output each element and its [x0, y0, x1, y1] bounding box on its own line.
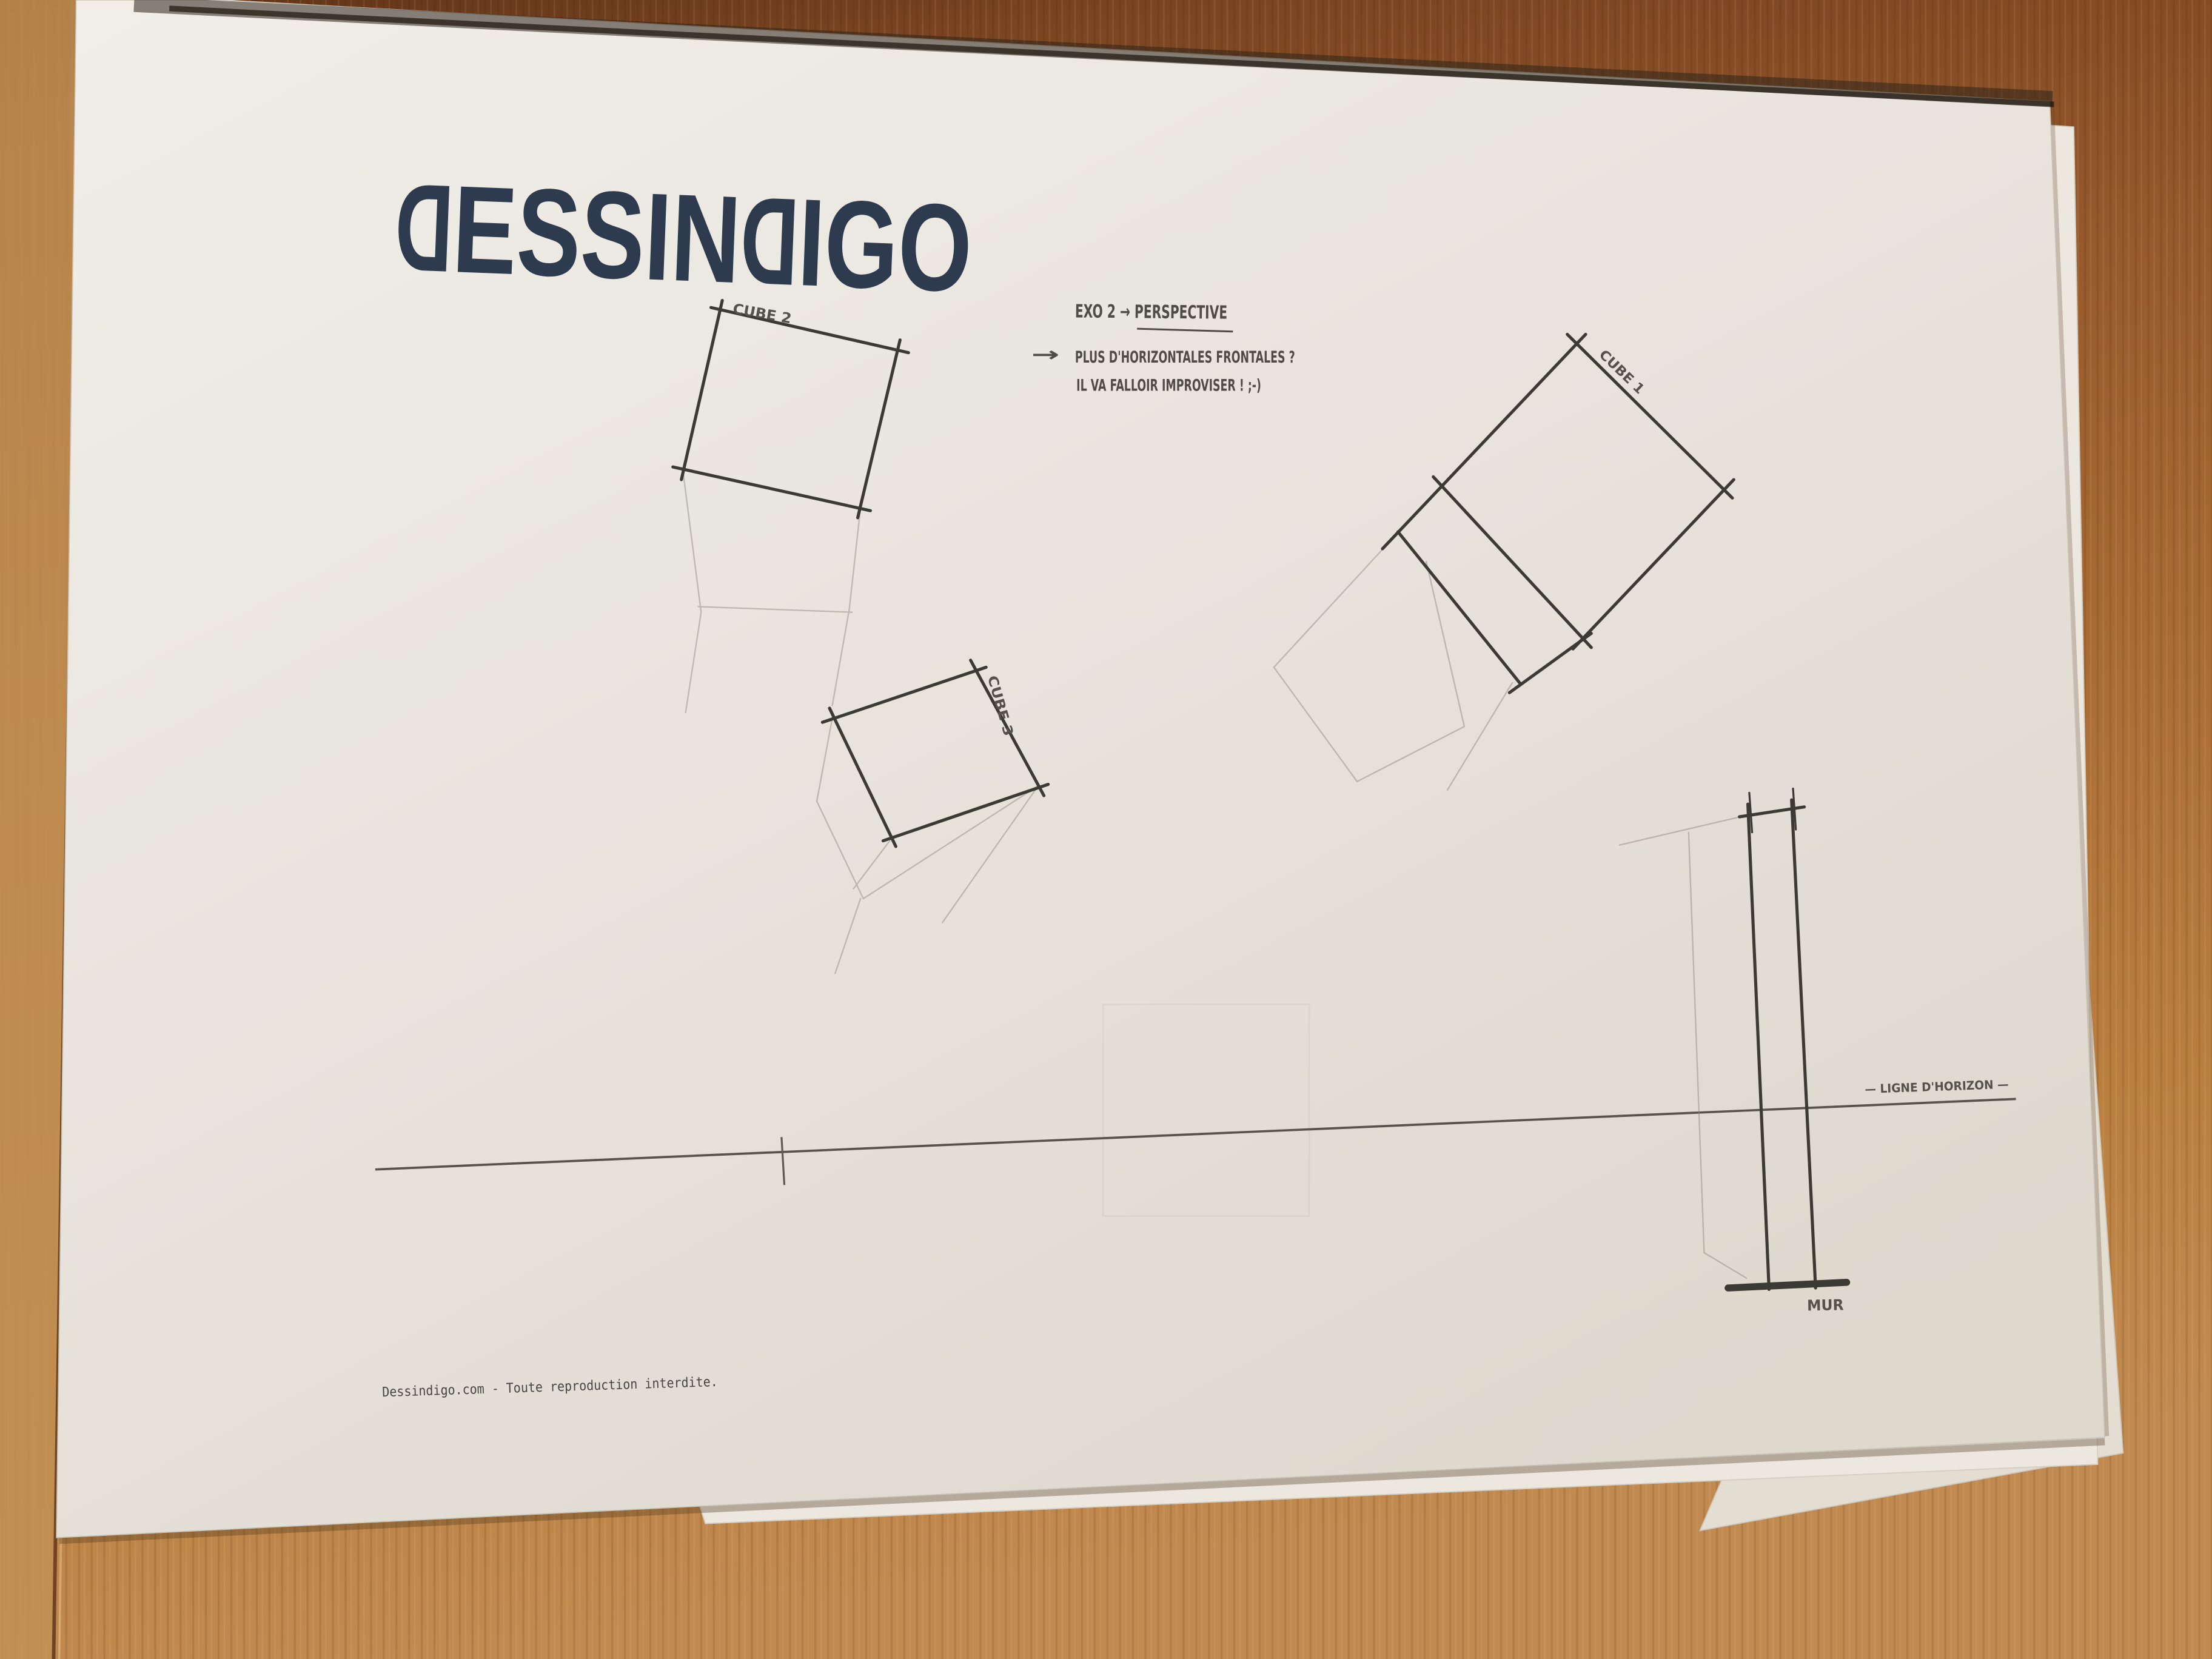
- photo-perspective-worksheet: D ESSIN D IGO EXO 2 → PERSPECTIVE → PLUS…: [0, 0, 2212, 1659]
- dessindigo-logo: D ESSIN D IGO: [392, 158, 974, 318]
- wall-label: MUR: [1807, 1296, 1844, 1314]
- note-question: PLUS D'HORIZONTALES FRONTALES ?: [1075, 348, 1295, 367]
- note-arrow-icon: →: [1031, 343, 1060, 366]
- exercise-title: EXO 2 → PERSPECTIVE: [1075, 301, 1228, 323]
- logo-letters-igo: IGO: [796, 173, 974, 318]
- main-paper-sheet: [56, 0, 2105, 1538]
- logo-letters-essin: ESSIN: [451, 160, 743, 309]
- note-answer: IL VA FALLOIR IMPROVISER ! ;-): [1076, 376, 1261, 395]
- logo-mirrored-d-first: D: [392, 158, 455, 298]
- logo-mirrored-d-second: D: [738, 171, 801, 311]
